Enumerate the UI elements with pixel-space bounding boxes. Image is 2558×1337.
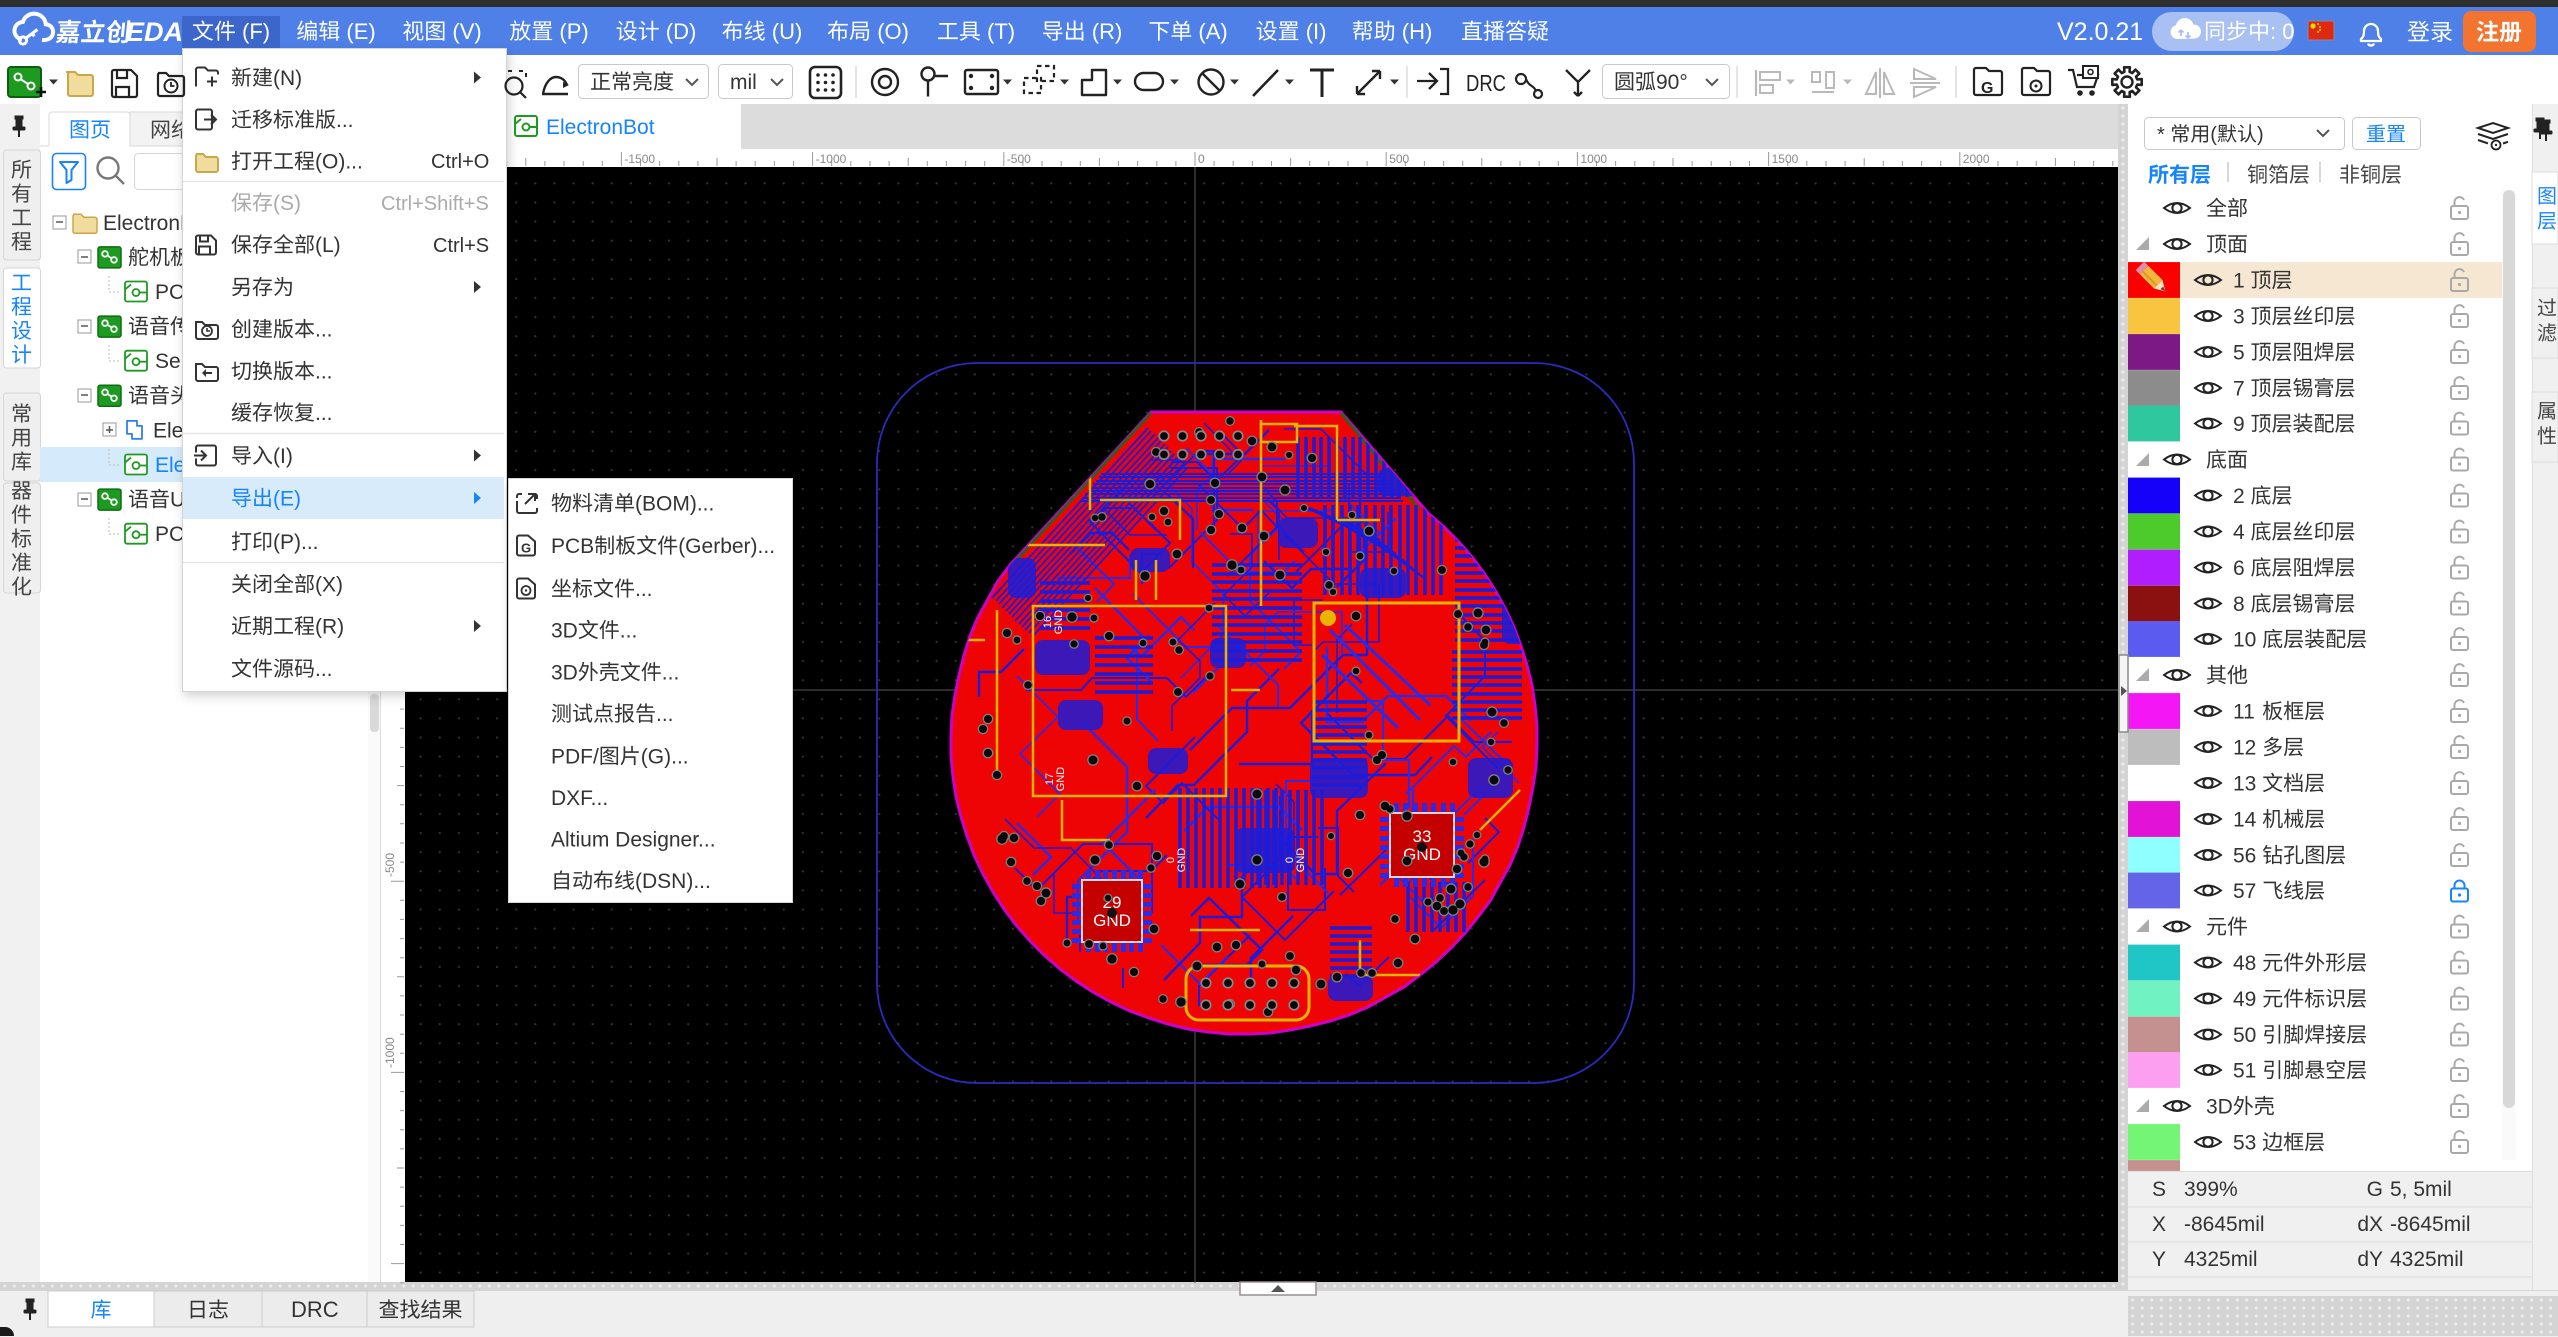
svg-text:2: 2 (2233, 485, 2251, 508)
svg-text:8: 8 (2233, 593, 2251, 616)
svg-text:...: ... (635, 578, 653, 601)
svg-text:Y: Y (2152, 1248, 2166, 1271)
svg-text:V2.0.21: V2.0.21 (2057, 18, 2143, 46)
svg-text:X: X (2152, 1213, 2166, 1236)
svg-text:12: 12 (2233, 737, 2262, 760)
svg-text:(I): (I) (273, 445, 293, 468)
svg-text:Ctrl+S: Ctrl+S (433, 235, 489, 257)
svg-text:(O): (O) (871, 19, 909, 44)
svg-text:(: ( (2210, 124, 2217, 146)
svg-text:PDF/: PDF/ (551, 746, 599, 769)
svg-text:48: 48 (2233, 952, 2262, 975)
svg-text:...: ... (315, 402, 333, 425)
svg-text:dY: dY (2357, 1248, 2383, 1271)
svg-text:...: ... (315, 361, 333, 384)
svg-text:: 0: : 0 (2270, 19, 2294, 44)
svg-text:(S): (S) (273, 192, 301, 215)
svg-text:(L): (L) (315, 234, 341, 257)
svg-text:(E): (E) (273, 488, 301, 511)
svg-text:(E): (E) (340, 19, 375, 44)
svg-text:5: 5 (2233, 342, 2251, 365)
svg-text:(D): (D) (660, 19, 697, 44)
svg-text:(X): (X) (315, 574, 343, 597)
svg-text:(R): (R) (315, 616, 344, 639)
svg-text:4: 4 (2233, 521, 2251, 544)
svg-text:4325mil: 4325mil (2184, 1248, 2258, 1271)
svg-text:9: 9 (2233, 413, 2251, 436)
svg-text:Ctrl+O: Ctrl+O (431, 151, 489, 173)
svg-text:(G)...: (G)... (641, 746, 689, 769)
svg-text:dX: dX (2357, 1213, 2383, 1236)
svg-text:G: G (521, 541, 531, 556)
svg-text:(O)...: (O)... (315, 151, 363, 174)
svg-text:Ctrl+Shift+S: Ctrl+Shift+S (381, 193, 489, 215)
svg-text:5, 5mil: 5, 5mil (2390, 1178, 2452, 1201)
svg-text:...: ... (656, 703, 674, 726)
svg-text:7: 7 (2233, 378, 2251, 401)
svg-text:10: 10 (2233, 629, 2262, 652)
svg-text:13: 13 (2233, 773, 2262, 796)
svg-text:50: 50 (2233, 1024, 2262, 1047)
svg-text:3D: 3D (2206, 1096, 2233, 1119)
svg-text:ElectronBot: ElectronBot (546, 116, 655, 139)
svg-text:(A): (A) (1192, 19, 1227, 44)
svg-text:(H): (H) (1396, 19, 1433, 44)
svg-text:*: * (2157, 124, 2170, 146)
svg-text:3D: 3D (551, 662, 578, 685)
svg-text:14: 14 (2233, 809, 2262, 832)
svg-text:S: S (2152, 1178, 2166, 1201)
svg-text:DRC: DRC (291, 1297, 339, 1322)
svg-text:...: ... (662, 662, 680, 685)
svg-text:4325mil: 4325mil (2390, 1248, 2464, 1271)
svg-text:(V): (V) (446, 19, 481, 44)
svg-text:6: 6 (2233, 557, 2251, 580)
svg-text:...: ... (336, 109, 354, 132)
svg-text:3: 3 (2233, 306, 2251, 329)
svg-text:G: G (2367, 1178, 2383, 1201)
svg-text:(BOM)...: (BOM)... (635, 493, 714, 516)
svg-text:DXF...: DXF... (551, 787, 608, 810)
svg-text:EDA: EDA (126, 17, 183, 47)
svg-text:mil: mil (730, 71, 757, 94)
svg-text:(P)...: (P)... (273, 531, 319, 554)
svg-text:-8645mil: -8645mil (2184, 1213, 2265, 1236)
svg-text:11: 11 (2233, 701, 2261, 724)
svg-text:Altium Designer...: Altium Designer... (551, 829, 716, 852)
svg-text:PCB: PCB (551, 535, 594, 558)
svg-text:(Gerber)...: (Gerber)... (678, 535, 775, 558)
svg-text:(I): (I) (1300, 19, 1327, 44)
svg-text:...: ... (315, 658, 333, 681)
svg-text:G: G (1981, 80, 1993, 97)
svg-text:): ) (2257, 124, 2264, 146)
svg-text:(F): (F) (236, 19, 270, 44)
svg-text:53: 53 (2233, 1132, 2262, 1155)
svg-text:3D: 3D (551, 620, 578, 643)
svg-text:...: ... (315, 319, 333, 342)
svg-text:(R): (R) (1086, 19, 1123, 44)
svg-text:(T): (T) (981, 19, 1015, 44)
svg-text:(N): (N) (273, 67, 302, 90)
svg-text:-8645mil: -8645mil (2390, 1213, 2471, 1236)
svg-text:56: 56 (2233, 845, 2262, 868)
svg-text:399%: 399% (2184, 1178, 2238, 1201)
svg-text:(P): (P) (553, 19, 588, 44)
svg-text:DRC: DRC (1466, 70, 1506, 96)
svg-text:90°: 90° (1656, 71, 1688, 94)
svg-text:1: 1 (2233, 270, 2251, 293)
svg-text:51: 51 (2233, 1060, 2262, 1083)
svg-text:...: ... (620, 620, 638, 643)
svg-text:(U): (U) (766, 19, 803, 44)
svg-text:(DSN)...: (DSN)... (635, 870, 711, 893)
svg-text:49: 49 (2233, 988, 2262, 1011)
svg-text:57: 57 (2233, 880, 2262, 903)
